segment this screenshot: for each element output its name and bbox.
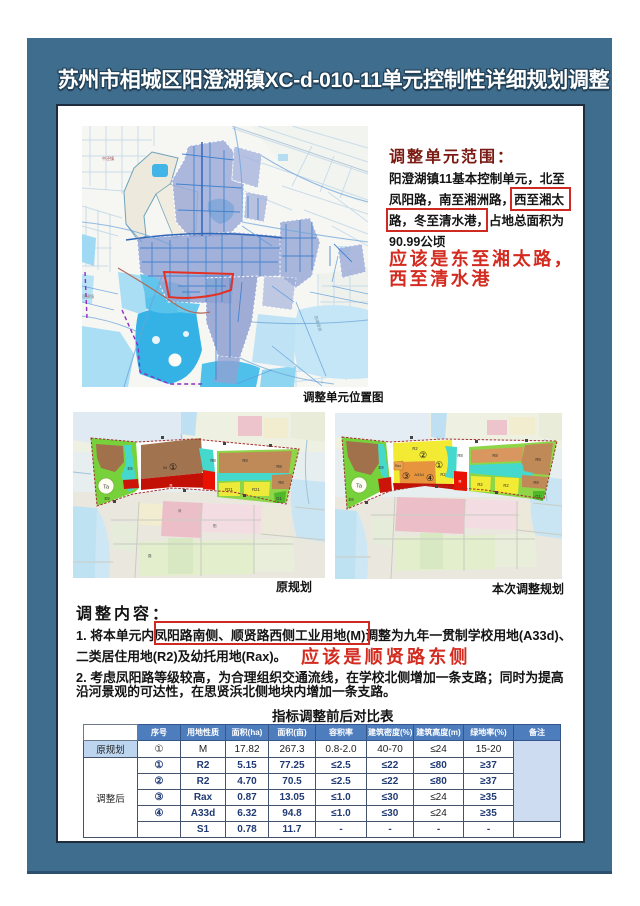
svg-text:R8: R8 bbox=[276, 464, 282, 469]
svg-text:Ta: Ta bbox=[103, 485, 110, 491]
svg-text:凤: 凤 bbox=[178, 509, 182, 513]
svg-text:E9: E9 bbox=[378, 465, 384, 470]
svg-text:R2: R2 bbox=[440, 472, 446, 477]
svg-text:Rax: Rax bbox=[395, 464, 401, 468]
svg-text:R2: R2 bbox=[477, 482, 483, 487]
svg-text:①: ① bbox=[169, 462, 177, 472]
svg-text:R: R bbox=[169, 483, 172, 488]
svg-text:A33d: A33d bbox=[414, 472, 423, 477]
svg-text:路: 路 bbox=[148, 553, 152, 558]
svg-text:R21: R21 bbox=[252, 487, 260, 492]
svg-text:③: ③ bbox=[402, 471, 410, 481]
svg-text:R8: R8 bbox=[242, 458, 248, 463]
svg-text:M: M bbox=[163, 465, 166, 470]
svg-text:莲横镇: 莲横镇 bbox=[82, 293, 94, 299]
svg-text:R8: R8 bbox=[457, 453, 463, 458]
svg-text:Ta: Ta bbox=[356, 484, 363, 490]
svg-text:E9: E9 bbox=[348, 497, 354, 502]
svg-text:R8: R8 bbox=[210, 458, 216, 463]
svg-text:R2: R2 bbox=[412, 446, 418, 451]
svg-text:阳: 阳 bbox=[213, 523, 217, 528]
svg-text:R: R bbox=[458, 479, 461, 484]
svg-text:R8: R8 bbox=[492, 453, 498, 458]
svg-text:R8: R8 bbox=[278, 480, 284, 485]
svg-text:R8: R8 bbox=[533, 480, 539, 485]
svg-text:G1: G1 bbox=[276, 496, 282, 501]
svg-text:①: ① bbox=[435, 460, 443, 470]
svg-text:E9: E9 bbox=[104, 496, 110, 501]
svg-text:②: ② bbox=[419, 450, 427, 460]
svg-text:中泾镇: 中泾镇 bbox=[102, 155, 114, 161]
svg-text:E9: E9 bbox=[127, 466, 133, 471]
svg-text:④: ④ bbox=[426, 473, 434, 483]
svg-text:R8: R8 bbox=[535, 457, 541, 462]
svg-text:R2: R2 bbox=[503, 483, 509, 488]
